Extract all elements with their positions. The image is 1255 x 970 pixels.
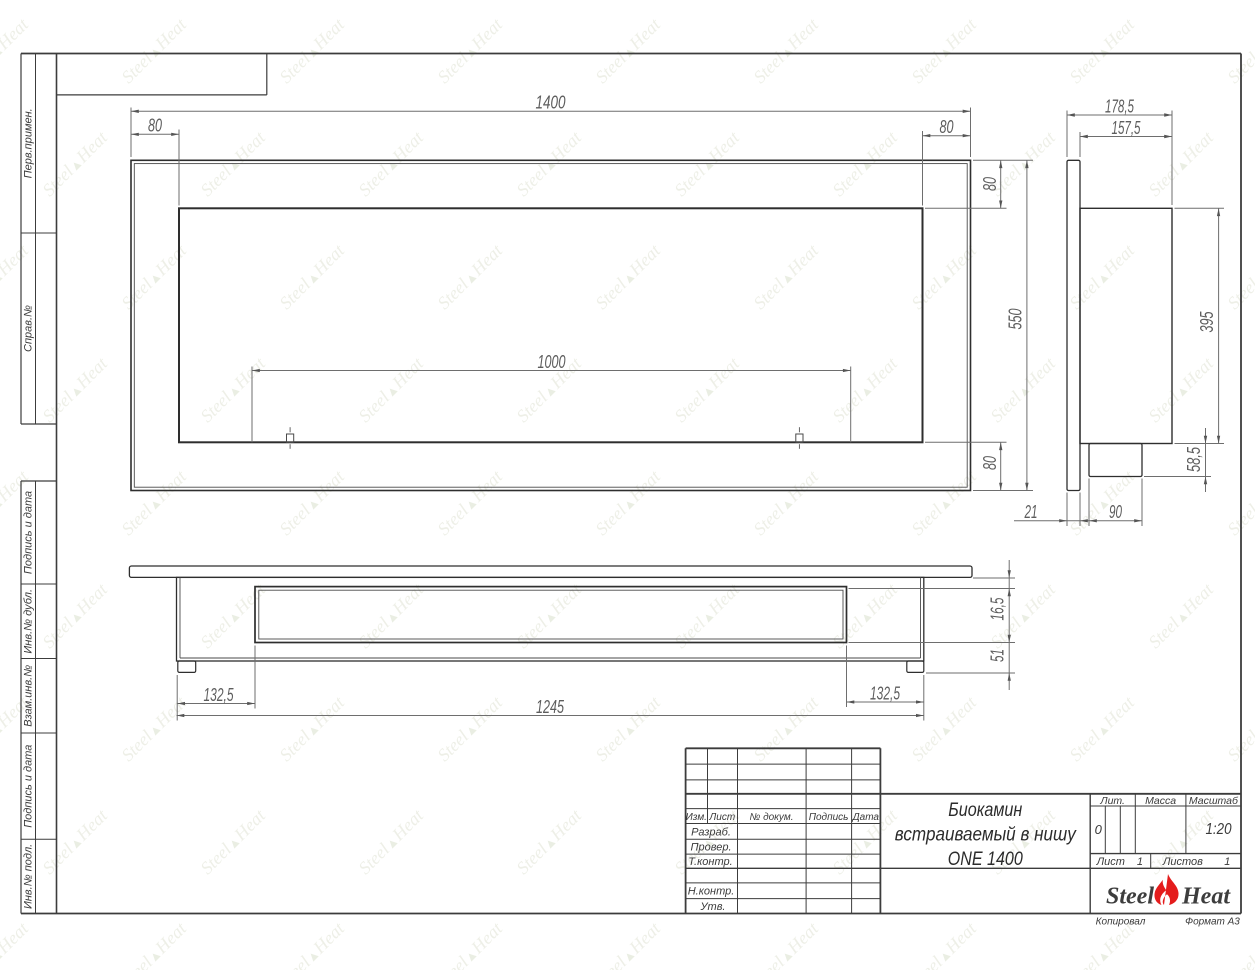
svg-text:Steel▲Heat: Steel▲Heat — [38, 579, 111, 652]
svg-text:Steel▲Heat: Steel▲Heat — [1144, 353, 1217, 426]
svg-text:Steel▲Heat: Steel▲Heat — [117, 692, 190, 765]
svg-text:Формат А3: Формат А3 — [1185, 917, 1240, 928]
svg-text:Подпись: Подпись — [809, 812, 849, 823]
svg-text:0: 0 — [1095, 822, 1103, 837]
svg-text:Масса: Масса — [1145, 795, 1176, 807]
svg-text:Steel▲Heat: Steel▲Heat — [275, 692, 348, 765]
svg-text:Steel▲Heat: Steel▲Heat — [0, 14, 33, 87]
svg-text:80: 80 — [980, 456, 1000, 470]
svg-text:Steel▲Heat: Steel▲Heat — [749, 240, 822, 313]
svg-text:Steel▲Heat: Steel▲Heat — [196, 805, 269, 878]
svg-text:1245: 1245 — [536, 697, 565, 717]
svg-text:Steel▲Heat: Steel▲Heat — [1144, 127, 1217, 200]
svg-text:Подпись и дата: Подпись и дата — [22, 491, 34, 574]
svg-text:Steel▲Heat: Steel▲Heat — [670, 579, 743, 652]
svg-text:Steel▲Heat: Steel▲Heat — [38, 127, 111, 200]
svg-text:Дата: Дата — [852, 812, 880, 823]
svg-text:Steel▲Heat: Steel▲Heat — [828, 579, 901, 652]
svg-text:Steel▲Heat: Steel▲Heat — [1065, 692, 1138, 765]
svg-text:Steel▲Heat: Steel▲Heat — [591, 692, 664, 765]
svg-text:ONE 1400: ONE 1400 — [948, 849, 1023, 870]
svg-text:Steel▲Heat: Steel▲Heat — [1223, 692, 1255, 765]
svg-text:Биокамин: Биокамин — [948, 800, 1022, 821]
svg-text:Steel▲Heat: Steel▲Heat — [275, 466, 348, 539]
svg-text:Разраб.: Разраб. — [691, 826, 731, 838]
svg-text:Steel▲Heat: Steel▲Heat — [1144, 579, 1217, 652]
svg-text:Steel▲Heat: Steel▲Heat — [354, 353, 427, 426]
svg-text:встраиваемый в нишу: встраиваемый в нишу — [895, 825, 1077, 846]
svg-text:Взам.инв.№: Взам.инв.№ — [22, 665, 34, 727]
svg-text:Steel▲Heat: Steel▲Heat — [1223, 14, 1255, 87]
svg-text:Steel▲Heat: Steel▲Heat — [591, 466, 664, 539]
svg-text:51: 51 — [988, 649, 1008, 662]
svg-text:Heat: Heat — [1181, 884, 1231, 910]
svg-text:1: 1 — [1224, 856, 1230, 868]
svg-text:80: 80 — [980, 177, 1000, 191]
svg-text:Лист: Лист — [708, 812, 735, 823]
svg-text:Справ.№: Справ.№ — [22, 305, 34, 352]
svg-text:Steel▲Heat: Steel▲Heat — [275, 14, 348, 87]
svg-text:132,5: 132,5 — [870, 683, 901, 703]
svg-text:Инв.№ дубл.: Инв.№ дубл. — [22, 589, 34, 654]
svg-text:58,5: 58,5 — [1184, 446, 1204, 472]
svg-text:Steel▲Heat: Steel▲Heat — [512, 805, 585, 878]
svg-text:Steel▲Heat: Steel▲Heat — [38, 353, 111, 426]
svg-text:Steel▲Heat: Steel▲Heat — [196, 353, 269, 426]
svg-text:132,5: 132,5 — [204, 685, 235, 705]
svg-text:Подпись и дата: Подпись и дата — [22, 745, 34, 828]
svg-text:Steel▲Heat: Steel▲Heat — [433, 240, 506, 313]
svg-text:Steel▲Heat: Steel▲Heat — [0, 918, 33, 970]
svg-text:Провер.: Провер. — [691, 842, 732, 854]
svg-text:16,5: 16,5 — [988, 597, 1008, 621]
svg-text:Steel▲Heat: Steel▲Heat — [275, 240, 348, 313]
svg-text:Т.контр.: Т.контр. — [688, 856, 732, 868]
svg-text:550: 550 — [1006, 309, 1026, 330]
svg-text:Steel▲Heat: Steel▲Heat — [117, 14, 190, 87]
svg-text:395: 395 — [1197, 311, 1217, 333]
svg-text:21: 21 — [1024, 502, 1038, 522]
svg-text:157,5: 157,5 — [1112, 118, 1142, 138]
svg-text:Н.контр.: Н.контр. — [688, 886, 735, 898]
svg-text:№ докум.: № докум. — [749, 812, 793, 823]
svg-text:Steel▲Heat: Steel▲Heat — [433, 14, 506, 87]
svg-text:Steel▲Heat: Steel▲Heat — [433, 918, 506, 970]
svg-text:Листов: Листов — [1162, 856, 1203, 868]
svg-text:Steel▲Heat: Steel▲Heat — [749, 692, 822, 765]
svg-text:Steel▲Heat: Steel▲Heat — [986, 353, 1059, 426]
svg-text:Инв.№ подл.: Инв.№ подл. — [22, 844, 34, 909]
svg-text:Steel▲Heat: Steel▲Heat — [433, 466, 506, 539]
svg-text:Steel▲Heat: Steel▲Heat — [907, 14, 980, 87]
svg-text:Масштаб: Масштаб — [1189, 795, 1239, 807]
svg-text:1400: 1400 — [536, 93, 566, 113]
svg-text:1: 1 — [1137, 856, 1143, 868]
svg-text:Steel▲Heat: Steel▲Heat — [591, 240, 664, 313]
svg-text:Копировал: Копировал — [1096, 917, 1146, 928]
svg-text:1000: 1000 — [538, 352, 566, 372]
svg-text:Steel▲Heat: Steel▲Heat — [0, 240, 33, 313]
svg-text:80: 80 — [148, 116, 162, 136]
svg-text:Steel▲Heat: Steel▲Heat — [433, 692, 506, 765]
svg-text:Steel: Steel — [1106, 884, 1154, 910]
svg-text:Steel▲Heat: Steel▲Heat — [749, 466, 822, 539]
svg-text:Steel▲Heat: Steel▲Heat — [1065, 14, 1138, 87]
svg-text:Steel▲Heat: Steel▲Heat — [117, 918, 190, 970]
svg-text:Steel▲Heat: Steel▲Heat — [749, 918, 822, 970]
svg-text:Steel▲Heat: Steel▲Heat — [591, 14, 664, 87]
svg-text:Steel▲Heat: Steel▲Heat — [275, 918, 348, 970]
svg-text:Steel▲Heat: Steel▲Heat — [1065, 240, 1138, 313]
svg-text:Steel▲Heat: Steel▲Heat — [749, 14, 822, 87]
svg-text:Steel▲Heat: Steel▲Heat — [38, 805, 111, 878]
svg-text:Steel▲Heat: Steel▲Heat — [354, 579, 427, 652]
svg-text:Лит.: Лит. — [1099, 795, 1125, 807]
svg-text:Steel▲Heat: Steel▲Heat — [1223, 240, 1255, 313]
svg-text:Лист: Лист — [1096, 856, 1125, 868]
svg-text:Steel▲Heat: Steel▲Heat — [354, 805, 427, 878]
svg-text:80: 80 — [940, 117, 954, 137]
svg-text:178,5: 178,5 — [1105, 96, 1135, 116]
svg-text:Steel▲Heat: Steel▲Heat — [1223, 466, 1255, 539]
svg-text:Steel▲Heat: Steel▲Heat — [512, 579, 585, 652]
svg-text:Steel▲Heat: Steel▲Heat — [828, 353, 901, 426]
svg-text:Steel▲Heat: Steel▲Heat — [907, 918, 980, 970]
svg-text:90: 90 — [1109, 502, 1122, 522]
svg-text:Утв.: Утв. — [700, 901, 726, 913]
svg-text:Изм.: Изм. — [686, 812, 707, 823]
svg-text:Steel▲Heat: Steel▲Heat — [591, 918, 664, 970]
svg-text:1:20: 1:20 — [1206, 821, 1232, 838]
svg-text:Steel▲Heat: Steel▲Heat — [670, 353, 743, 426]
svg-text:Перв.примен.: Перв.примен. — [22, 108, 34, 178]
svg-text:Steel▲Heat: Steel▲Heat — [117, 466, 190, 539]
